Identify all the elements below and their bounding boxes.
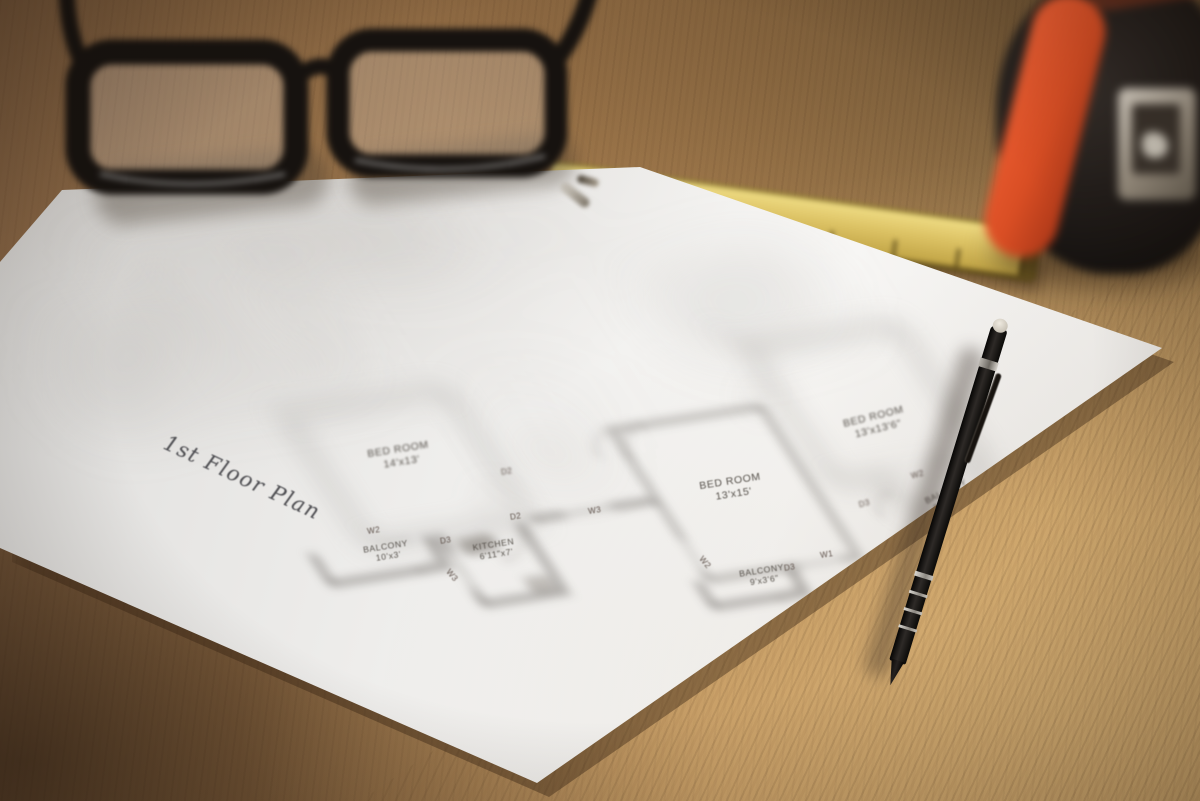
eyeglasses-frame — [30, 0, 610, 252]
pen-shadow — [863, 345, 986, 679]
room-label-balcony-2: BALCONY 9'x3'6" — [738, 561, 789, 588]
marker-d2-kitchen: D2 — [509, 511, 522, 522]
right-temple-arm — [554, 0, 596, 64]
marker-d3-balcony-1: D3 — [439, 535, 452, 546]
room-label-bedroom-2: BED ROOM 13'x15' — [698, 470, 767, 505]
pen-ring — [909, 590, 928, 598]
marker-w3-wall: W3 — [587, 505, 601, 516]
pen-body — [889, 325, 1008, 665]
left-lens — [78, 52, 296, 182]
pen-ring — [914, 571, 934, 581]
pen-metal-band — [978, 357, 999, 371]
marker-w3-kitchen: W3 — [444, 567, 459, 583]
photo-scene: 1st Floor Plan BED ROOM 14'x13' BALCONY … — [0, 0, 1200, 801]
tape-measure — [968, 0, 1200, 306]
pen — [830, 315, 1060, 700]
pen-ring — [898, 624, 917, 632]
room-label-bedroom-1: BED ROOM 14'x13' — [366, 438, 435, 473]
eyeglasses — [30, 0, 610, 252]
bridge — [296, 66, 338, 80]
room-label-balcony-1: BALCONY 10'x3' — [362, 537, 413, 564]
pen-top-button — [991, 317, 1009, 335]
left-temple-arm — [67, 0, 82, 64]
marker-w2-bedroom-1: W2 — [366, 525, 380, 536]
right-lens — [338, 40, 556, 166]
tape-measure-belt-clip — [1118, 88, 1196, 200]
pen-ring — [903, 607, 922, 615]
plan-title: 1st Floor Plan — [160, 431, 325, 525]
tape-measure-clip-glint — [1142, 132, 1168, 158]
marker-d3-balcony-2: D3 — [783, 562, 796, 573]
marker-d2-bedroom-1: D2 — [500, 466, 513, 477]
